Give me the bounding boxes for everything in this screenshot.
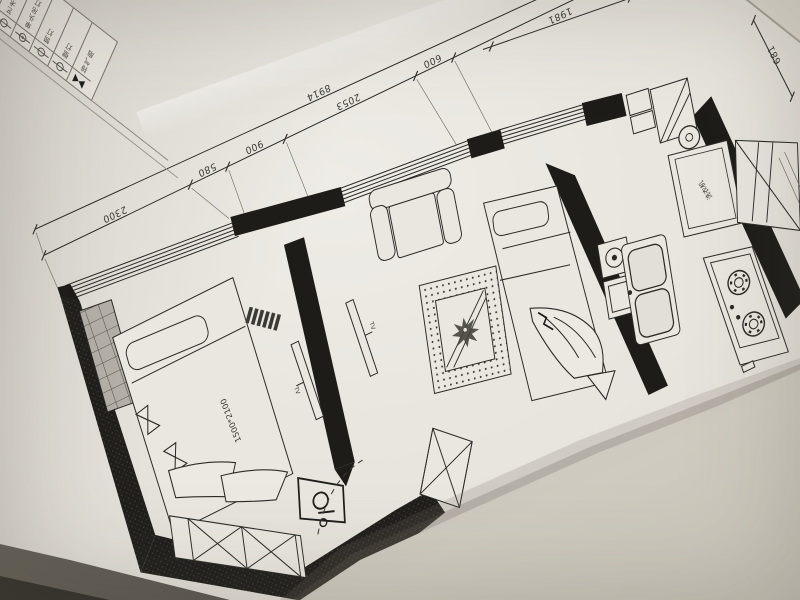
window-band-daybed [499, 92, 587, 157]
tv-label: TV [292, 385, 300, 396]
wall-partition-top [229, 167, 347, 256]
radiator-comb [245, 307, 281, 331]
photo-of-floor-plan: 8914 1981 2300 580 900 2053 600 681 [0, 0, 800, 600]
dim-681: 681 [766, 43, 784, 67]
tv-board-living: TV [346, 294, 389, 376]
tv-label: TV [367, 320, 375, 331]
dim-600: 600 [422, 51, 443, 70]
rug-coffee-table [419, 266, 511, 394]
dim-580: 580 [196, 160, 217, 179]
dim-900: 900 [243, 137, 264, 156]
wall-pier-living [465, 124, 506, 164]
wall-pier-kitchen-top [579, 85, 629, 134]
